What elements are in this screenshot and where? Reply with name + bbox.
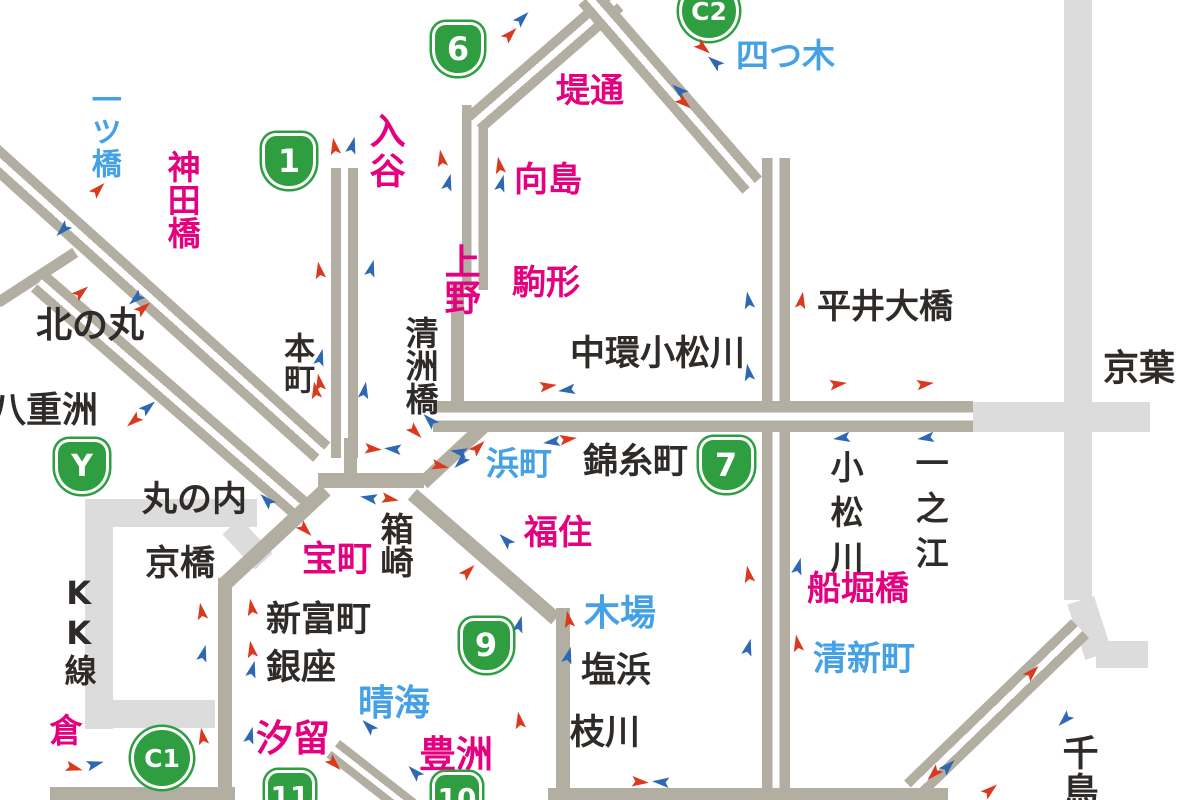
route-badge-y: Y [55,439,109,494]
map-label: 清新町 [813,642,915,677]
traffic-direction-blue-arrow-icon [741,291,756,310]
map-label: 四つ木 [736,39,835,73]
road-segment [218,578,232,794]
traffic-direction-red-arrow-icon [194,602,209,621]
road-segment [1096,641,1148,668]
traffic-direction-blue-arrow-icon [512,8,533,29]
map-label: 神田橋 [164,150,198,249]
traffic-direction-blue-arrow-icon [364,258,380,278]
map-label: 入谷 [365,112,402,192]
road-segment [50,787,235,800]
map-label: 塩浜 [581,653,651,689]
map-label: 向島 [514,163,582,198]
road-segment [326,740,433,800]
map-label: 浜町 [486,447,552,481]
traffic-direction-red-arrow-icon [88,179,109,200]
route-badge-c2: C2 [679,0,739,41]
map-label: 錦糸町 [583,444,688,480]
map-label: 駒形 [512,266,580,301]
traffic-direction-blue-arrow-icon [791,556,807,576]
traffic-direction-red-arrow-icon [539,379,558,393]
map-label: 一ツ橋 [88,84,119,180]
traffic-direction-blue-arrow-icon [245,659,261,679]
traffic-direction-red-arrow-icon [829,377,848,391]
traffic-direction-red-arrow-icon [123,411,144,431]
traffic-direction-blue-arrow-icon [652,775,670,788]
road-segment [556,608,570,794]
traffic-direction-blue-arrow-icon [359,491,378,506]
traffic-direction-blue-arrow-icon [384,442,402,455]
map-label: 船堀橋 [807,572,909,607]
road-segment [344,438,357,476]
route-badge-6: 6 [432,22,484,76]
traffic-direction-red-arrow-icon [327,137,342,156]
road-segment [762,158,790,800]
map-label: 晴海 [358,685,430,722]
traffic-direction-blue-arrow-icon [704,52,725,72]
map-label: 豊洲 [419,736,493,774]
map-label: 一之江 [912,446,946,581]
map-label: 銀座 [266,650,336,686]
traffic-direction-blue-arrow-icon [832,431,851,445]
map-label: 中環小松川 [570,336,745,372]
traffic-direction-red-arrow-icon [632,775,650,788]
traffic-direction-blue-arrow-icon [313,347,329,367]
map-label: KK線 [61,574,94,688]
traffic-direction-blue-arrow-icon [494,173,510,193]
traffic-direction-red-arrow-icon [492,156,507,175]
map-label: 堤通 [556,74,624,109]
map-label: 京葉 [1103,350,1175,387]
route-badge-9: 9 [460,618,513,673]
map-label: 枝川 [570,715,640,751]
traffic-direction-blue-arrow-icon [357,381,372,400]
map-label: 平井大橋 [817,290,953,325]
traffic-direction-red-arrow-icon [381,492,400,507]
traffic-direction-red-arrow-icon [434,149,449,168]
road-segment [973,402,1150,432]
road-segment [1064,0,1092,600]
road-segment [548,788,948,800]
traffic-direction-red-arrow-icon [195,727,210,746]
traffic-direction-blue-arrow-icon [196,643,212,663]
traffic-direction-red-arrow-icon [916,377,935,391]
traffic-direction-red-arrow-icon [65,760,85,776]
map-label: 倉 [46,713,80,746]
route-badge-7: 7 [699,437,754,493]
map-label: 北の丸 [36,307,144,344]
map-label: 木場 [584,595,656,632]
map-label: 上野 [440,243,477,315]
traffic-map: 一ツ橋神田橋入谷上野堤通向島駒形四つ木平井大橋中環小松川北の丸八重洲本町清洲橋錦… [0,0,1200,800]
traffic-direction-blue-arrow-icon [495,530,516,551]
traffic-direction-red-arrow-icon [794,291,809,310]
map-label: 福住 [524,516,592,551]
route-badge-10: 10 [432,772,482,800]
traffic-direction-red-arrow-icon [365,442,383,455]
map-label: 丸の内 [142,482,247,518]
traffic-direction-red-arrow-icon [512,711,527,730]
traffic-direction-blue-arrow-icon [512,614,528,634]
route-badge-11: 11 [265,770,315,800]
traffic-direction-red-arrow-icon [312,261,327,280]
traffic-direction-red-arrow-icon [458,561,479,582]
map-label: 本町 [280,332,312,394]
route-badge-1: 1 [262,133,316,189]
road-segment [318,473,424,488]
traffic-direction-red-arrow-icon [405,422,426,443]
traffic-direction-red-arrow-icon [741,565,756,584]
map-label: 新富町 [266,602,371,638]
traffic-direction-blue-arrow-icon [557,383,576,397]
map-label: 八重洲 [0,392,98,429]
route-badge-c1: C1 [131,727,193,789]
road-segment [331,168,358,458]
map-label: 千鳥 [1058,734,1095,800]
traffic-direction-blue-arrow-icon [741,637,757,657]
map-label: 京橋 [145,546,215,582]
traffic-direction-red-arrow-icon [790,634,805,653]
traffic-direction-blue-arrow-icon [441,172,457,192]
map-label: 宝町 [302,542,372,578]
traffic-direction-blue-arrow-icon [916,431,935,445]
map-label: 汐留 [256,720,330,758]
map-label: 箱崎 [377,512,411,578]
traffic-direction-blue-arrow-icon [1054,710,1075,731]
traffic-direction-red-arrow-icon [244,598,259,617]
traffic-direction-red-arrow-icon [693,38,714,58]
road-segment [85,700,215,728]
map-label: 清洲橋 [402,316,436,415]
traffic-direction-red-arrow-icon [980,780,1001,800]
traffic-direction-red-arrow-icon [244,640,259,659]
road-segment [433,401,973,432]
traffic-direction-red-arrow-icon [559,432,578,446]
traffic-direction-blue-arrow-icon [86,756,106,772]
traffic-direction-blue-arrow-icon [345,135,361,155]
road-segment [408,489,561,624]
map-label: 小松川 [827,450,861,585]
traffic-direction-red-arrow-icon [500,24,521,45]
